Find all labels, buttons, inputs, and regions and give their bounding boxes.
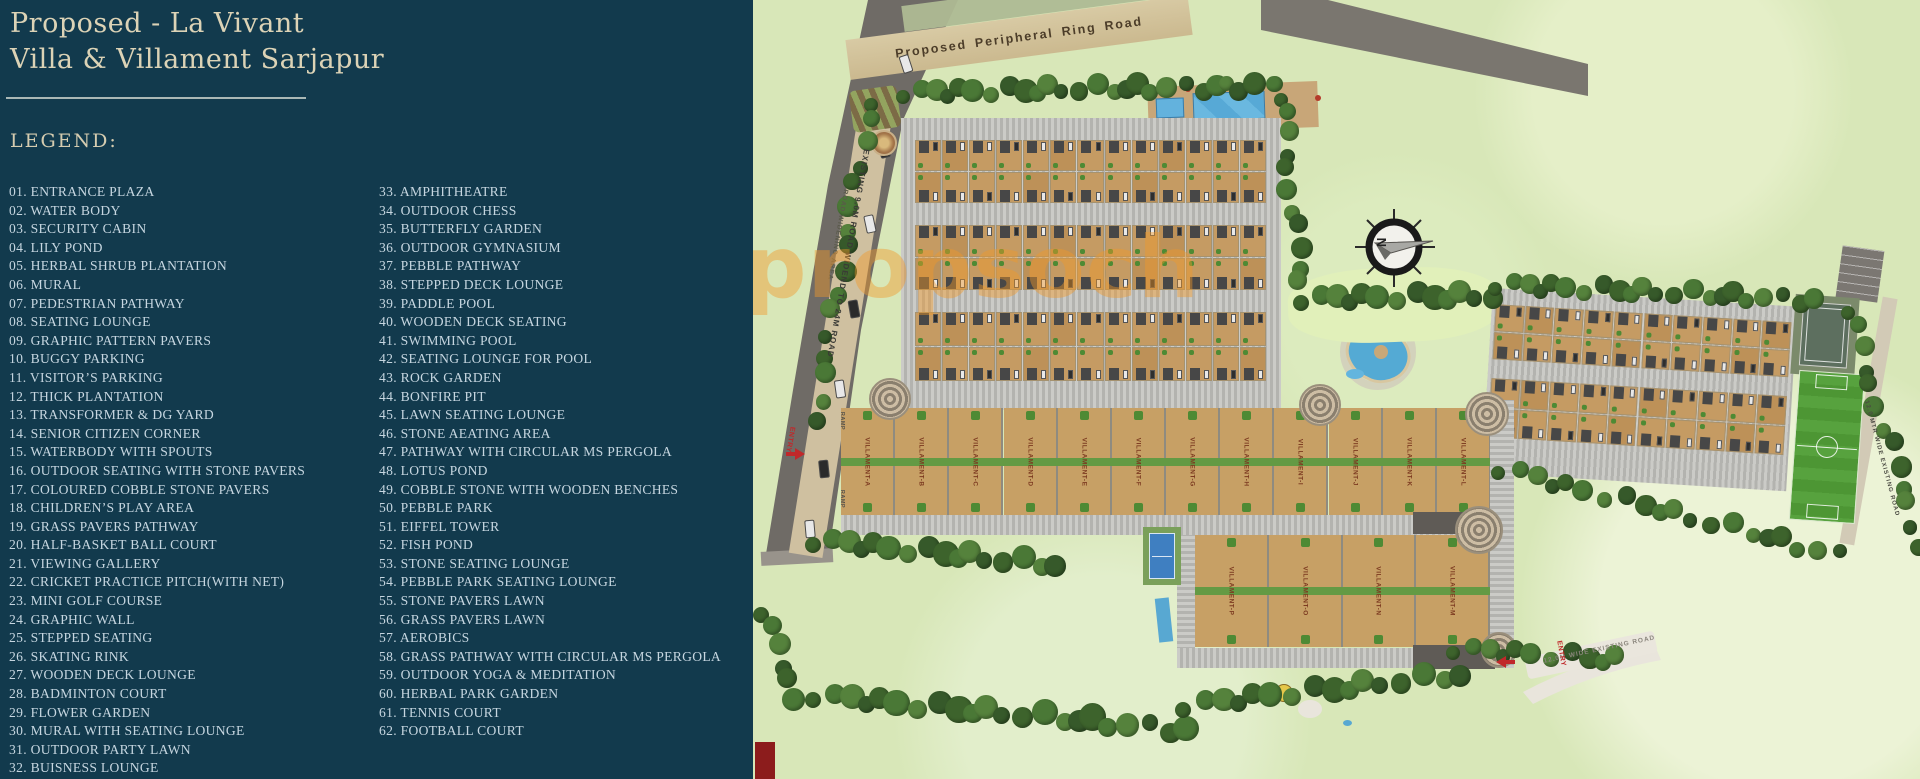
villa-plot xyxy=(942,172,968,203)
villa-plot xyxy=(1240,172,1266,203)
villa-plot xyxy=(1697,391,1727,422)
legend-item: 47. PATHWAY WITH CIRCULAR MS PERGOLA xyxy=(379,443,721,462)
legend-item: 60. HERBAL PARK GARDEN xyxy=(379,685,721,704)
plaza-path xyxy=(1298,700,1322,718)
villament-label: VILLAMENT-I xyxy=(1297,438,1304,484)
villa-plot xyxy=(1159,347,1185,381)
legend-item: 46. STONE AEATING AREA xyxy=(379,425,721,444)
villa-plot xyxy=(942,140,968,171)
tree xyxy=(1702,517,1720,535)
tree xyxy=(1446,646,1460,660)
villa-plot xyxy=(1613,311,1643,340)
tree xyxy=(908,700,927,719)
villa-plot xyxy=(1240,312,1266,346)
tree xyxy=(876,536,901,561)
villa-plot xyxy=(1671,343,1701,372)
small-pond xyxy=(1343,720,1352,726)
villa-plot xyxy=(1643,313,1673,342)
tree xyxy=(983,87,999,103)
tree xyxy=(816,394,831,409)
tree xyxy=(896,90,910,104)
villa-plot xyxy=(1494,304,1524,333)
villa-plot xyxy=(1186,172,1212,203)
legend-item: 36. OUTDOOR GYMNASIUM xyxy=(379,239,721,258)
villament-label: VILLAMENT-K xyxy=(1405,437,1412,486)
site-map: Proposed Peripheral Ring Road EXISTING 9… xyxy=(753,0,1920,779)
tree xyxy=(1175,702,1191,718)
legend-item: 02. WATER BODY xyxy=(9,202,305,221)
villa-plot xyxy=(1077,172,1103,203)
tree xyxy=(1466,290,1483,307)
legend-item: 34. OUTDOOR CHESS xyxy=(379,202,721,221)
tree xyxy=(1491,466,1505,480)
legend-item: 41. SWIMMING POOL xyxy=(379,332,721,351)
roundabout xyxy=(869,378,911,420)
villa-plot xyxy=(1577,413,1607,444)
villa-plot xyxy=(1050,172,1076,203)
project-title: Proposed - La Vivant Villa & Villament S… xyxy=(10,6,650,77)
legend-item: 43. ROCK GARDEN xyxy=(379,369,721,388)
tree xyxy=(805,537,821,553)
car xyxy=(804,520,816,539)
villament-label: VILLAMENT-H xyxy=(1243,437,1250,486)
legend-item: 30. MURAL WITH SEATING LOUNGE xyxy=(9,722,305,741)
tree xyxy=(1683,279,1703,299)
villament-label: VILLAMENT-J xyxy=(1351,437,1358,485)
legend-item: 61. TENNIS COURT xyxy=(379,704,721,723)
compass-n: N xyxy=(1374,238,1389,247)
villament-label: VILLAMENT-A xyxy=(864,437,871,486)
tree xyxy=(1156,77,1177,98)
tree xyxy=(1597,492,1613,508)
circular-pergola xyxy=(1299,384,1341,426)
tree xyxy=(1116,713,1140,737)
watermark: propsoch xyxy=(745,218,1200,318)
villa-plot xyxy=(1105,172,1131,203)
tree xyxy=(1804,288,1824,308)
villament-label: VILLAMENT-O xyxy=(1301,566,1308,616)
villa-plot xyxy=(996,347,1022,381)
villa-plot xyxy=(1186,140,1212,171)
villa-plot xyxy=(969,140,995,171)
villa-plot xyxy=(1159,172,1185,203)
legend-column-1: 01. ENTRANCE PLAZA02. WATER BODY03. SECU… xyxy=(9,183,305,778)
villa-plot xyxy=(1608,385,1638,416)
villa-plot xyxy=(1668,389,1698,420)
legend-item: 10. BUGGY PARKING xyxy=(9,350,305,369)
title-line-2: Villa & Villament Sarjapur xyxy=(10,42,650,78)
corner-banner xyxy=(755,742,775,779)
villa-plot xyxy=(1213,312,1239,346)
legend-item: 48. LOTUS POND xyxy=(379,462,721,481)
villa-plot xyxy=(1524,306,1554,335)
tree xyxy=(815,362,835,382)
villament-row-upper: VILLAMENT-AVILLAMENT-BVILLAMENT-CVILLAME… xyxy=(841,408,1491,515)
tree xyxy=(1289,214,1308,233)
villa-plot xyxy=(1186,347,1212,381)
villa-plot xyxy=(1582,338,1612,367)
villa-plot xyxy=(1213,225,1239,257)
villament-label: VILLAMENT-F xyxy=(1134,437,1141,485)
villa-plot xyxy=(1077,140,1103,171)
villa-plot xyxy=(915,140,941,171)
legend-item: 18. CHILDREN’S PLAY AREA xyxy=(9,499,305,518)
legend-item: 37. PEBBLE PATHWAY xyxy=(379,257,721,276)
villa-plot xyxy=(942,347,968,381)
villa-plot xyxy=(1213,347,1239,381)
compass-icon: N xyxy=(1351,205,1437,291)
legend-item: 09. GRAPHIC PATTERN PAVERS xyxy=(9,332,305,351)
legend-item: 06. MURAL xyxy=(9,276,305,295)
tree xyxy=(976,552,993,569)
ramp-label: RAMP xyxy=(839,412,845,430)
villa-plot xyxy=(1554,308,1584,337)
villa-plot xyxy=(1023,140,1049,171)
villa-plot xyxy=(1757,394,1787,425)
villa-plot xyxy=(1725,423,1755,454)
tree xyxy=(777,668,797,688)
legend-item: 23. MINI GOLF COURSE xyxy=(9,592,305,611)
tree xyxy=(1776,287,1790,301)
legend-item: 28. BADMINTON COURT xyxy=(9,685,305,704)
legend-item: 62. FOOTBALL COURT xyxy=(379,722,721,741)
tree xyxy=(763,616,782,635)
tree xyxy=(883,690,909,716)
villament-label: VILLAMENT-G xyxy=(1189,437,1196,487)
tree xyxy=(1391,673,1411,693)
legend-item: 32. BUISNESS LOUNGE xyxy=(9,759,305,778)
legend-item: 21. VIEWING GALLERY xyxy=(9,555,305,574)
legend-item: 45. LAWN SEATING LOUNGE xyxy=(379,406,721,425)
tree xyxy=(1266,76,1283,93)
tree xyxy=(1142,714,1158,730)
villament-label: VILLAMENT-C xyxy=(972,437,979,486)
legend-item: 13. TRANSFORMER & DG YARD xyxy=(9,406,305,425)
tree xyxy=(858,131,878,151)
villa-plot xyxy=(1023,347,1049,381)
legend-heading: LEGEND: xyxy=(10,130,118,152)
tree xyxy=(863,110,880,127)
villa-plot xyxy=(969,347,995,381)
villa-plot xyxy=(1672,315,1702,344)
villament-row-lower: VILLAMENT-PVILLAMENT-OVILLAMENT-NVILLAME… xyxy=(1195,535,1490,647)
legend-item: 44. BONFIRE PIT xyxy=(379,388,721,407)
legend-item: 03. SECURITY CABIN xyxy=(9,220,305,239)
villa-plot xyxy=(1636,417,1666,448)
tree xyxy=(1070,82,1088,100)
villa-plot xyxy=(1761,321,1791,350)
goal-box xyxy=(1815,374,1848,390)
villa-plot xyxy=(1579,384,1609,415)
tree xyxy=(1618,486,1637,505)
villa-plot xyxy=(1519,380,1549,411)
legend-item: 25. STEPPED SEATING xyxy=(9,629,305,648)
tree xyxy=(1044,555,1066,577)
villa-plot xyxy=(1606,415,1636,446)
legend-item: 55. STONE PAVERS LAWN xyxy=(379,592,721,611)
badminton-court xyxy=(1149,533,1175,579)
villa-plot xyxy=(1518,410,1548,441)
villa-plot xyxy=(1240,140,1266,171)
legend-item: 40. WOODEN DECK SEATING xyxy=(379,313,721,332)
tree xyxy=(805,692,821,708)
legend-item: 57. AEROBICS xyxy=(379,629,721,648)
legend-item: 33. AMPHITHEATRE xyxy=(379,183,721,202)
legend-item: 53. STONE SEATING LOUNGE xyxy=(379,555,721,574)
legend-item: 12. THICK PLANTATION xyxy=(9,388,305,407)
tree xyxy=(1293,295,1309,311)
villa-plot xyxy=(1493,332,1523,361)
legend-item: 42. SEATING LOUNGE FOR POOL xyxy=(379,350,721,369)
legend-item: 35. BUTTERFLY GARDEN xyxy=(379,220,721,239)
tree xyxy=(1512,461,1529,478)
legend-item: 15. WATERBODY WITH SPOUTS xyxy=(9,443,305,462)
tree xyxy=(1855,336,1875,356)
tree xyxy=(1723,512,1743,532)
tree xyxy=(1279,103,1296,120)
tree xyxy=(993,552,1013,572)
villa-plot xyxy=(1727,393,1757,424)
legend-item: 22. CRICKET PRACTICE PITCH(WITH NET) xyxy=(9,573,305,592)
villa-plot xyxy=(1050,347,1076,381)
villa-plot xyxy=(1547,412,1577,443)
tree xyxy=(1032,699,1058,725)
tree xyxy=(1258,682,1283,707)
villa-plot xyxy=(969,172,995,203)
tree xyxy=(1555,277,1576,298)
legend-item: 08. SEATING LOUNGE xyxy=(9,313,305,332)
villa-plot xyxy=(1023,172,1049,203)
legend-item: 50. PEBBLE PARK xyxy=(379,499,721,518)
tree xyxy=(1173,716,1198,741)
villa-cluster-east xyxy=(1482,288,1798,491)
villa-plot xyxy=(1583,310,1613,339)
tree xyxy=(1276,179,1297,200)
legend-item: 07. PEDESTRIAN PATHWAY xyxy=(9,295,305,314)
villa-plot xyxy=(996,140,1022,171)
villa-plot xyxy=(1732,319,1762,348)
villa-plot xyxy=(1759,348,1789,377)
villa-plot xyxy=(1132,347,1158,381)
villa-plot xyxy=(1105,347,1131,381)
legend-item: 16. OUTDOOR SEATING WITH STONE PAVERS xyxy=(9,462,305,481)
villa-plot xyxy=(1077,347,1103,381)
villa-plot xyxy=(1050,140,1076,171)
legend-item: 27. WOODEN DECK LOUNGE xyxy=(9,666,305,685)
villament-label: VILLAMENT-E xyxy=(1080,437,1087,486)
tree xyxy=(1288,270,1308,290)
villa-plot xyxy=(1213,140,1239,171)
legend-item: 52. FISH POND xyxy=(379,536,721,555)
circular-pergola xyxy=(1465,392,1509,436)
legend-item: 38. STEPPED DECK LOUNGE xyxy=(379,276,721,295)
villa-plot xyxy=(1755,424,1785,455)
villa-plot xyxy=(1611,339,1641,368)
tree xyxy=(1891,456,1913,478)
legend-item: 49. COBBLE STONE WITH WOODEN BENCHES xyxy=(379,481,721,500)
tree xyxy=(961,79,984,102)
villa-plot xyxy=(1666,419,1696,450)
villa-plot xyxy=(1549,382,1579,413)
tree xyxy=(1683,513,1698,528)
title-divider xyxy=(6,97,306,99)
legend-item: 14. SENIOR CITIZEN CORNER xyxy=(9,425,305,444)
villa-plot xyxy=(1522,334,1552,363)
tree xyxy=(782,688,805,711)
villament-label: VILLAMENT-P xyxy=(1227,567,1234,616)
field-center-circle xyxy=(1815,435,1838,458)
villa-plot xyxy=(1730,347,1760,376)
tree xyxy=(1179,76,1193,90)
villa-plot xyxy=(1240,347,1266,381)
circular-pergola xyxy=(1455,506,1503,554)
tree xyxy=(1665,287,1683,305)
umbrella-icon xyxy=(1315,95,1321,101)
villament-label: VILLAMENT-D xyxy=(1026,437,1033,486)
legend-item: 11. VISITOR’S PARKING xyxy=(9,369,305,388)
legend-item: 31. OUTDOOR PARTY LAWN xyxy=(9,741,305,760)
legend-item: 01. ENTRANCE PLAZA xyxy=(9,183,305,202)
car xyxy=(818,460,830,479)
villa-plot xyxy=(915,172,941,203)
villa-plot xyxy=(1702,317,1732,346)
parking-area xyxy=(1836,245,1885,302)
green-spine xyxy=(1195,587,1490,595)
legend-item: 39. PADDLE POOL xyxy=(379,295,721,314)
villament-label: VILLAMENT-B xyxy=(918,437,925,486)
villament-label: VILLAMENT-M xyxy=(1449,566,1456,616)
tree xyxy=(1371,677,1388,694)
tree xyxy=(1808,541,1827,560)
tree xyxy=(1754,288,1773,307)
villa-plot xyxy=(1132,140,1158,171)
tree xyxy=(1054,84,1069,99)
tree xyxy=(1465,638,1482,655)
villa-plot xyxy=(1213,172,1239,203)
screenshot-root: Proposed - La Vivant Villa & Villament S… xyxy=(0,0,1920,779)
tree xyxy=(1572,480,1593,501)
ramp-label: RAMP xyxy=(839,490,845,508)
legend-item: 26. SKATING RINK xyxy=(9,648,305,667)
villa-plot xyxy=(915,347,941,381)
tree xyxy=(1903,520,1918,535)
paddle-pool xyxy=(1156,98,1185,119)
villament-label: VILLAMENT-L xyxy=(1459,437,1466,485)
tree xyxy=(1648,287,1663,302)
villa-plot xyxy=(1240,258,1266,290)
green-spine xyxy=(841,458,1491,466)
legend-item: 04. LILY POND xyxy=(9,239,305,258)
title-line-1: Proposed - La Vivant xyxy=(10,6,650,42)
tree xyxy=(1141,84,1158,101)
legend-item: 19. GRASS PAVERS PATHWAY xyxy=(9,518,305,537)
legend-item: 20. HALF-BASKET BALL COURT xyxy=(9,536,305,555)
villa-plot xyxy=(1105,140,1131,171)
villa-plot xyxy=(1240,225,1266,257)
tree xyxy=(1885,432,1904,451)
villa-plot xyxy=(1132,172,1158,203)
villa-plot xyxy=(1700,345,1730,374)
legend-item: 56. GRASS PAVERS LAWN xyxy=(379,611,721,630)
tree xyxy=(1664,499,1684,519)
tree xyxy=(1449,665,1471,687)
legend-item: 59. OUTDOOR YOGA & MEDITATION xyxy=(379,666,721,685)
villa-plot xyxy=(1159,140,1185,171)
legend-item: 54. PEBBLE PARK SEATING LOUNGE xyxy=(379,573,721,592)
villa-plot xyxy=(1641,341,1671,370)
goal-box xyxy=(1806,504,1839,520)
legend-item: 17. COLOURED COBBLE STONE PAVERS xyxy=(9,481,305,500)
legend-item: 05. HERBAL SHRUB PLANTATION xyxy=(9,257,305,276)
villa-plot xyxy=(1695,421,1725,452)
legend-column-2: 33. AMPHITHEATRE34. OUTDOOR CHESS35. BUT… xyxy=(379,183,721,741)
legend-panel: Proposed - La Vivant Villa & Villament S… xyxy=(0,0,753,779)
tree xyxy=(1276,158,1294,176)
villa-plot xyxy=(1638,387,1668,418)
football-court xyxy=(1789,370,1865,524)
legend-item: 51. EIFFEL TOWER xyxy=(379,518,721,537)
villa-plot xyxy=(1552,336,1582,365)
tree xyxy=(1910,539,1920,557)
tree xyxy=(1291,237,1313,259)
tree xyxy=(1576,285,1592,301)
legend-item: 58. GRASS PATHWAY WITH CIRCULAR MS PERGO… xyxy=(379,648,721,667)
legend-item: 24. GRAPHIC WALL xyxy=(9,611,305,630)
villament-label: VILLAMENT-N xyxy=(1375,566,1382,615)
legend-item: 29. FLOWER GARDEN xyxy=(9,704,305,723)
tree xyxy=(1488,282,1502,296)
villa-plot xyxy=(996,172,1022,203)
villa-plot xyxy=(1213,258,1239,290)
